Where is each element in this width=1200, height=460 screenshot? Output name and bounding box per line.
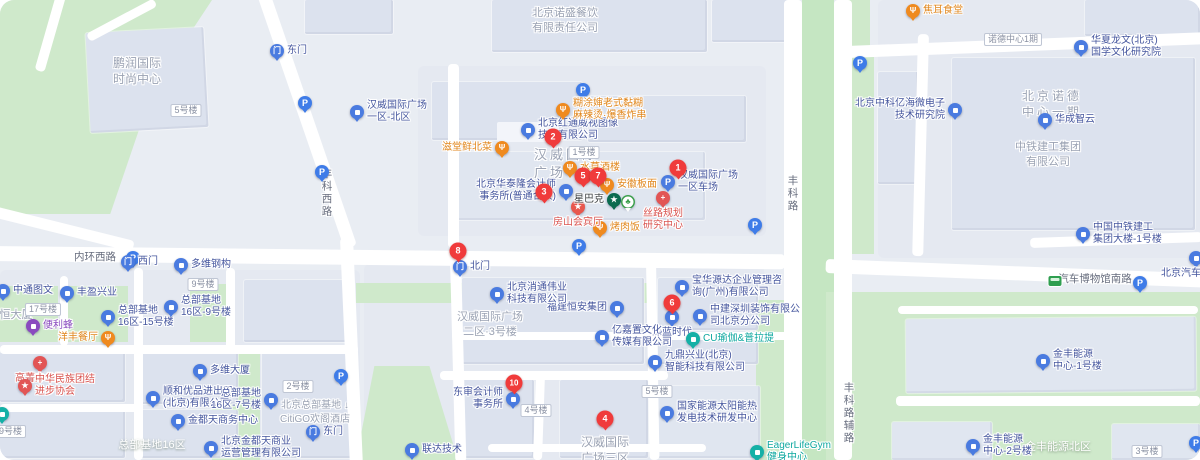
building-icon [610,301,624,315]
parking-lot-icon: P [661,175,675,189]
poi-label: 联达技术 [422,444,462,456]
building-icon [660,406,674,420]
building-icon [490,287,504,301]
poi-label-line: 中建深圳装饰有限公 [710,304,800,316]
lifestyle-icon [750,445,764,459]
parking-icon: P [1133,276,1147,290]
poi-label: 北京金都天商业运营管理有限公司 [221,436,301,460]
building-icon [1189,251,1200,265]
poi-label: 东门 [323,426,343,438]
poi-label: 烤肉饭 [610,222,640,234]
poi-label-line: 中心-1号楼 [1053,361,1102,373]
poi-label-line: 一区车场 [678,182,738,194]
area-label-line: 总部基地16区 [118,438,185,453]
poi-label-line: CU瑜伽&普拉提 [703,333,774,345]
building-icon [0,284,10,298]
poi-label: 金丰能源中心-2号楼 [983,434,1032,458]
poi-label-line: 总部基地 [181,295,231,307]
poi-label: CU瑜伽&普拉提 [703,333,774,345]
road-label: 丰科路辅路 [842,382,857,445]
poi-label-line: 亿嘉置文化 [612,325,672,337]
map-pin-1[interactable]: 1 [670,160,687,177]
poi-label-line: 汉威国际广场 [678,170,738,182]
poi-label: 中通图文 [13,285,53,297]
poi-label: 北京中科亿海微电子技术研究院 [855,98,945,122]
area-label: 北京总部基地 ↓CitiGO欢阁酒店 [280,399,350,426]
area-label-line: 北京诺德 [1022,88,1082,104]
poi-label-line: 多维大厦 [210,365,250,377]
road-label: 内环西路 [74,249,116,264]
poi-label-line: 华成智云 [1055,114,1095,126]
poi-label: 多维大厦 [210,365,250,377]
poi-label-line: 事务所 [453,399,503,411]
poi-label: 北门 [470,261,490,273]
building-number-label: 5号楼 [170,104,201,117]
poi-label: 中华民族团结进步协会 [35,374,95,398]
building-number-label: 2号楼 [282,380,313,393]
poi-label-line: 健身中心 [767,452,831,460]
building-number-label: 4号楼 [520,404,551,417]
poi-label: 九鼎兴业(北京)智能科技有限公司 [665,350,745,374]
poi-layer: 鹏润国际时尚中心北京诺盛餐饮有限责任公司汉威国际广场一区北京诺德中心一期中铁建工… [0,0,1200,460]
parking-icon: P [572,239,586,253]
poi-label: 多维钢构 [191,259,231,271]
poi-label: 汉威国际广场一区车场 [678,170,738,194]
poi-label: 金都天商务中心 [188,415,258,427]
poi-label: 焦耳食堂 [923,5,963,17]
poi-label: 总部基地16区-7号楼 [211,388,261,412]
poi-label-line: 汉威国际广场 [367,100,427,112]
building-number-label: 1号楼 [568,146,599,159]
poi-label-line: 智能科技有限公司 [665,362,745,374]
building-icon [1036,354,1050,368]
poi-label: 华成智云 [1055,114,1095,126]
parking-icon: P [576,83,590,97]
map-canvas[interactable]: 鹏润国际时尚中心北京诺盛餐饮有限责任公司汉威国际广场一区北京诺德中心一期中铁建工… [0,0,1200,460]
poi-label-line: 东门 [323,426,343,438]
poi-label-line: 中心-2号楼 [983,446,1032,458]
poi-label-line: 西门 [138,256,158,268]
poi-label: 华夏龙文(北京)国学文化研究院 [1091,35,1161,59]
bus-stop-icon[interactable] [1049,276,1062,286]
area-label-line: 北京诺盛餐饮 [532,6,598,21]
area-label-line: 时尚中心 [113,71,161,87]
map-pin-7[interactable]: 7 [590,168,607,185]
poi-label-line: 金丰能源 [983,434,1032,446]
convenience-store-icon [26,319,40,333]
restaurant-icon: Ψ [495,141,509,155]
area-label-line: 金丰能源北区 [1025,440,1091,455]
map-pin-2[interactable]: 2 [545,129,562,146]
area-label-line: 广场三区 [581,450,629,460]
poi-label: 亿嘉置文化传媒有限公司 [612,325,672,349]
area-label: 金丰能源北区 [1025,440,1091,455]
starbucks-icon: ★ [607,193,621,207]
poi-label-line: 16区-9号楼 [181,307,231,319]
building-icon [1074,40,1088,54]
building-number-label: 5号楼 [641,385,672,398]
map-pin-8[interactable]: 8 [450,243,467,260]
poi-label-line: 中通图文 [13,285,53,297]
poi-label: EagerLifeGym健身中心 [767,440,831,460]
restaurant-icon: Ψ [556,103,570,117]
building-icon [521,123,535,137]
poi-label-line: 北门 [470,261,490,273]
poi-label: 滋堂鲜北菜 [442,142,492,154]
poi-label-line: 集团大楼-1号楼 [1093,234,1162,246]
poi-label: 丝路规划研究中心 [643,208,683,232]
parking-icon: P [853,56,867,70]
area-label-line: 有限责任公司 [532,21,598,36]
poi-label-line: 中华民族团结 [35,374,95,386]
poi-label-line: 一区-北区 [367,112,427,124]
poi-label-line: 房山会宾厅 [553,217,603,229]
poi-label: 北京消通伟业科技有限公司 [507,282,567,306]
map-pin-6[interactable]: 6 [664,295,681,312]
restaurant-icon: Ψ [101,331,115,345]
building-icon [1038,113,1052,127]
poi-label-line: 东门 [287,45,307,57]
poi-label-line: 星巴克 [574,194,604,206]
parking-icon: P [298,96,312,110]
building-icon [648,355,662,369]
poi-label-line: 安徽板面 [617,179,657,191]
building-icon [405,443,419,457]
poi-label-line: 麻辣烫·爆香炸串 [573,110,646,122]
gate-icon: 门 [270,44,284,58]
poi-label: 宝华源达企业管理咨询(广州)有限公司 [692,275,782,299]
building-icon [264,393,278,407]
parking-icon: P [334,369,348,383]
building-number-label: 17号楼 [25,303,61,316]
building-icon [193,364,207,378]
poi-label-line: 研究中心 [643,220,683,232]
area-label-line: 汉威国际 [581,434,629,450]
building-icon [693,309,707,323]
road-label: 汽车博物馆南路 [1058,271,1132,286]
building-icon [204,441,218,455]
poi-label-line: 华夏龙文(北京) [1091,35,1161,47]
poi-label-line: 烤肉饭 [610,222,640,234]
building-number-label: 9号楼 [187,278,218,291]
poi-label: 星巴克 [574,194,604,206]
poi-label-line: 九鼎兴业(北京) [665,350,745,362]
area-label: 汉威国际广场二区·3号楼 [457,310,523,340]
area-label-line: 北京总部基地 ↓ [280,399,350,413]
poi-label: 房山会宾厅 [553,217,603,229]
building-icon [350,105,364,119]
poi-label-line: 滋堂鲜北菜 [442,142,492,154]
area-label: 汉威国际广场三区 [581,434,629,460]
building-icon [675,280,689,294]
poi-label-line: 北京消通伟业 [507,282,567,294]
poi-label: 中建深圳装饰有限公司北京分公司 [710,304,800,328]
building-icon [966,439,980,453]
building-icon [171,414,185,428]
building-icon [146,391,160,405]
association-icon: ★ [18,379,32,393]
poi-label: 丰盈兴业 [77,287,117,299]
area-label: 总部基地16区 [118,438,185,453]
poi-label: 金丰能源中心-1号楼 [1053,349,1102,373]
building-number-label: 诺德中心1期 [984,33,1042,46]
poi-label-line: 技术研究院 [855,110,945,122]
restaurant-icon: Ψ [906,4,920,18]
poi-label: 便利蜂 [43,320,73,332]
cross-icon: + [656,191,670,205]
area-label: 中铁建工集团有限公司 [1015,140,1081,170]
area-label-line: 中铁建工集团 [1015,140,1081,155]
building-icon [164,300,178,314]
parking-icon: P [748,218,762,232]
poi-label-line: 科技有限公司 [507,294,567,306]
building-icon [948,103,962,117]
poi-label: 北京汽车博物馆 [1161,268,1200,280]
poi-label: 国家能源太阳能热发电技术研发中心 [677,401,757,425]
parking-icon: P [1189,436,1200,450]
building-icon [174,258,188,272]
area-label-line: 二区·3号楼 [457,325,523,340]
road-label: 丰科路 [786,175,801,213]
area-label-line: 汉威国际广场 [457,310,523,325]
poi-label-line: 总部基地 [211,388,261,400]
poi-label-line: 国学文化研究院 [1091,47,1161,59]
poi-label: 汉威国际广场一区-北区 [367,100,427,124]
poi-label-line: 16区-15号楼 [118,317,174,329]
area-label-line: 鹏润国际 [113,55,161,71]
poi-label-line: 糊涂婶老式黏糊 [573,98,646,110]
poi-label-line: 进步协会 [35,386,95,398]
poi-label-line: 多维钢构 [191,259,231,271]
poi-label: 中国中铁建工集团大楼-1号楼 [1093,222,1162,246]
poi-label-line: 运营管理有限公司 [221,448,301,460]
gate-icon: 门 [306,425,320,439]
poi-label: 东门 [287,45,307,57]
building-icon [559,184,573,198]
poi-label-line: 司北京分公司 [710,316,800,328]
poi-label-line: 联达技术 [422,444,462,456]
map-pin-4[interactable]: 4 [597,411,614,428]
poi-label: 安徽板面 [617,179,657,191]
poi-label-line: 北京金都天商业 [221,436,301,448]
poi-label-line: 发电技术研发中心 [677,413,757,425]
poi-label-line: 焦耳食堂 [923,5,963,17]
poi-label-line: 北京中科亿海微电子 [855,98,945,110]
poi-label-line: 丰盈兴业 [77,287,117,299]
poi-label-line: 中国中铁建工 [1093,222,1162,234]
poi-label: 洋丰餐厅 [58,332,98,344]
poi-label-line: 便利蜂 [43,320,73,332]
building-icon [101,310,115,324]
gate-icon: 门 [121,255,135,269]
lifestyle-icon [686,332,700,346]
poi-label-line: 宝华源达企业管理咨 [692,275,782,287]
map-pin-10[interactable]: 10 [506,375,523,392]
poi-label-line: 丝路规划 [643,208,683,220]
parking-icon: P [315,165,329,179]
area-label-line: 有限公司 [1015,155,1081,170]
poi-label: 东审会计师事务所 [453,387,503,411]
building-icon [1076,227,1090,241]
tree-icon: ♣ [621,195,635,209]
area-label: 北京诺盛餐饮有限责任公司 [532,6,598,36]
poi-label-line: EagerLifeGym [767,440,831,452]
poi-label-line: 东审会计师 [453,387,503,399]
poi-label-line: 洋丰餐厅 [58,332,98,344]
poi-label-line: 北京汽车博物馆 [1161,268,1200,280]
poi-label: 糊涂婶老式黏糊麻辣烫·爆香炸串 [573,98,646,122]
area-label: 鹏润国际时尚中心 [113,55,161,87]
poi-label: 西门 [138,256,158,268]
building-icon [595,330,609,344]
map-pin-3[interactable]: 3 [536,184,553,201]
area-label-line: CitiGO欢阁酒店 [280,413,350,427]
poi-label-line: 16区-7号楼 [211,400,261,412]
lifestyle-icon [0,407,9,421]
poi-label-line: 金丰能源 [1053,349,1102,361]
cross-icon: + [33,356,47,370]
poi-label-line: 金都天商务中心 [188,415,258,427]
poi-label: 总部基地16区-9号楼 [181,295,231,319]
poi-label-line: 国家能源太阳能热 [677,401,757,413]
building-number-label: 3号楼 [1131,445,1162,458]
poi-label-line: 询(广州)有限公司 [692,287,782,299]
poi-label-line: 传媒有限公司 [612,337,672,349]
building-icon [60,286,74,300]
